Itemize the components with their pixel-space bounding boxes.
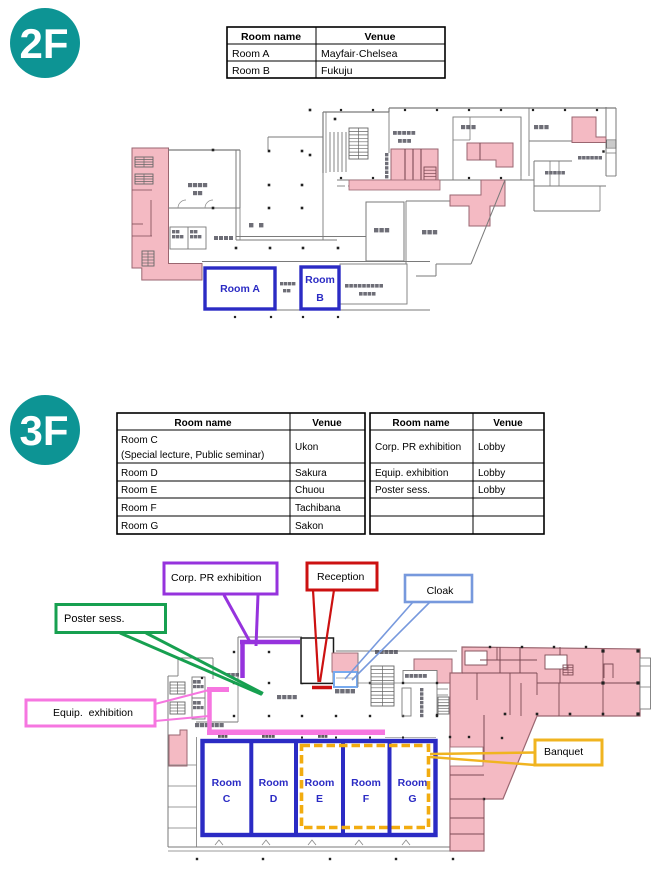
svg-text:Lobby: Lobby (478, 442, 505, 453)
svg-text:Lobby: Lobby (478, 485, 505, 496)
svg-text:Reception: Reception (317, 571, 364, 583)
svg-text:Mayfair·Chelsea: Mayfair·Chelsea (321, 48, 398, 60)
svg-text:Room: Room (259, 777, 289, 789)
svg-text:Room: Room (212, 777, 242, 789)
svg-text:Lobby: Lobby (478, 468, 505, 479)
svg-text:Sakon: Sakon (295, 521, 323, 532)
svg-text:Equip. exhibition: Equip. exhibition (53, 707, 133, 719)
svg-text:Chuou: Chuou (295, 485, 324, 496)
svg-text:E: E (316, 793, 323, 805)
svg-text:Banquet: Banquet (544, 746, 583, 758)
svg-text:Room A: Room A (232, 48, 269, 60)
svg-text:Room: Room (305, 274, 335, 286)
svg-text:Ukon: Ukon (295, 442, 318, 453)
svg-text:Poster sess.: Poster sess. (64, 613, 125, 625)
svg-text:Room D: Room D (121, 468, 158, 479)
svg-text:F: F (363, 793, 370, 805)
svg-text:Poster sess.: Poster sess. (375, 485, 430, 496)
svg-text:B: B (316, 292, 324, 304)
svg-text:3F: 3F (19, 407, 68, 454)
svg-text:G: G (408, 793, 416, 805)
svg-text:Room F: Room F (121, 503, 157, 514)
svg-text:Room A: Room A (220, 283, 260, 295)
svg-text:Room C: Room C (121, 435, 158, 446)
svg-text:2F: 2F (19, 20, 68, 67)
svg-text:Room E: Room E (121, 485, 157, 496)
svg-text:Venue: Venue (365, 31, 396, 43)
svg-text:Cloak: Cloak (427, 585, 455, 597)
svg-text:Room: Room (305, 777, 335, 789)
svg-text:Venue: Venue (312, 418, 342, 429)
svg-text:Room name: Room name (392, 418, 450, 429)
svg-text:Sakura: Sakura (295, 468, 327, 479)
svg-text:Room name: Room name (174, 418, 232, 429)
svg-text:Equip. exhibition: Equip. exhibition (375, 468, 448, 479)
svg-text:Room B: Room B (232, 65, 270, 77)
svg-text:Venue: Venue (493, 418, 523, 429)
svg-text:D: D (270, 793, 278, 805)
svg-text:Room: Room (398, 777, 428, 789)
svg-text:Room: Room (351, 777, 381, 789)
svg-text:C: C (223, 793, 231, 805)
svg-text:Tachibana: Tachibana (295, 503, 341, 514)
svg-text:Fukuju: Fukuju (321, 65, 353, 77)
svg-text:Room name: Room name (241, 31, 301, 43)
svg-text:(Special lecture, Public semin: (Special lecture, Public seminar) (121, 450, 264, 461)
svg-text:Corp. PR exhibition: Corp. PR exhibition (375, 442, 461, 453)
svg-text:Room G: Room G (121, 521, 158, 532)
svg-text:Corp. PR exhibition: Corp. PR exhibition (171, 572, 262, 584)
